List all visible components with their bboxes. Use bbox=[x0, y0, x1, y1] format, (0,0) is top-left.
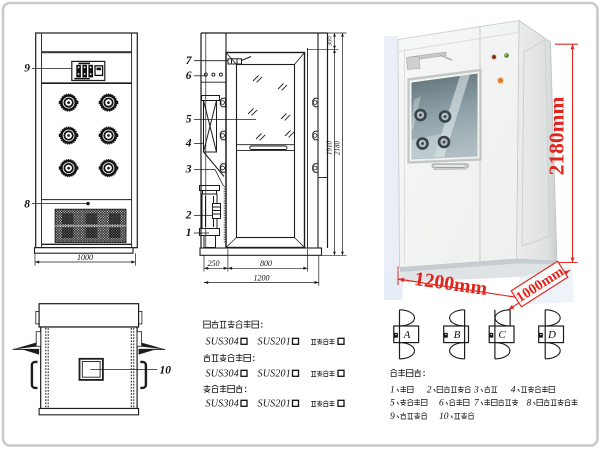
svg-text:8: 8 bbox=[527, 399, 532, 409]
svg-text:5: 5 bbox=[186, 114, 192, 126]
svg-text:1910: 1910 bbox=[326, 141, 334, 156]
svg-text:800: 800 bbox=[260, 259, 272, 268]
svg-text:250: 250 bbox=[208, 259, 220, 268]
svg-text:2: 2 bbox=[427, 386, 432, 396]
svg-text:SUS201: SUS201 bbox=[258, 399, 291, 410]
svg-text:SUS304: SUS304 bbox=[206, 337, 239, 348]
svg-text:1: 1 bbox=[390, 386, 395, 396]
svg-text:D: D bbox=[547, 329, 556, 341]
svg-text:5: 5 bbox=[390, 399, 395, 409]
svg-text:SUS304: SUS304 bbox=[206, 399, 239, 410]
svg-text:1000: 1000 bbox=[77, 253, 93, 262]
svg-text:4: 4 bbox=[185, 138, 192, 150]
svg-text:SUS201: SUS201 bbox=[258, 337, 291, 348]
svg-text:6: 6 bbox=[439, 399, 444, 409]
svg-text:2: 2 bbox=[185, 210, 192, 222]
svg-text:C: C bbox=[498, 329, 506, 341]
svg-text:SUS201: SUS201 bbox=[258, 369, 291, 380]
svg-text:10: 10 bbox=[439, 412, 449, 422]
svg-text:1: 1 bbox=[186, 227, 192, 239]
svg-text:A: A bbox=[403, 329, 411, 341]
svg-text:1200: 1200 bbox=[254, 273, 270, 282]
svg-text:4: 4 bbox=[511, 386, 516, 396]
svg-text:B: B bbox=[454, 329, 461, 341]
svg-text:9: 9 bbox=[390, 412, 395, 422]
svg-text:6: 6 bbox=[186, 70, 192, 82]
svg-text:9: 9 bbox=[24, 63, 30, 75]
svg-text:3: 3 bbox=[473, 386, 479, 396]
svg-text:8: 8 bbox=[24, 199, 30, 211]
svg-text:SUS304: SUS304 bbox=[206, 369, 239, 380]
svg-text:10: 10 bbox=[160, 365, 172, 377]
svg-text:2180mm: 2180mm bbox=[545, 97, 569, 176]
svg-text:2180: 2180 bbox=[334, 141, 342, 156]
svg-text:300: 300 bbox=[327, 36, 334, 48]
svg-text:3: 3 bbox=[185, 164, 192, 176]
